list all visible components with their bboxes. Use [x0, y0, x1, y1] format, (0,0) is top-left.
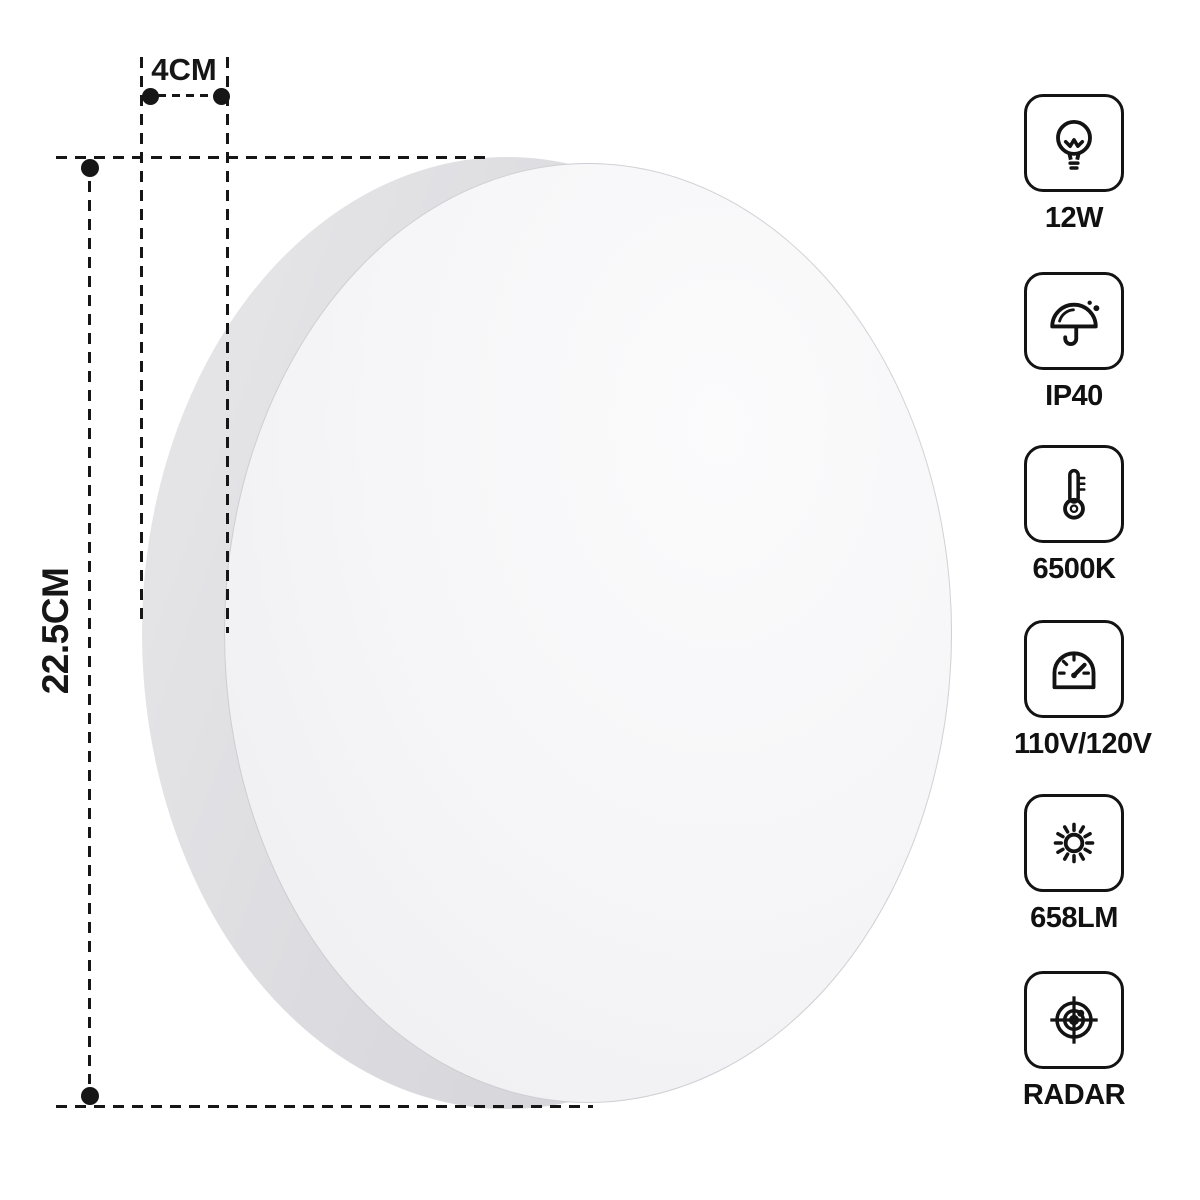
spec-label: RADAR: [1014, 1080, 1134, 1110]
spec-box: [1024, 94, 1124, 192]
spec-box: [1024, 272, 1124, 370]
thermometer-icon: [1042, 462, 1106, 526]
spec-box: [1024, 971, 1124, 1069]
spec-badge-voltage: 110V/120V: [1014, 620, 1134, 759]
depth-endpoint-dot-right: [213, 88, 230, 105]
depth-dimension-line: [158, 94, 213, 97]
diameter-endpoint-dot-top: [81, 159, 99, 177]
spec-label: 12W: [1014, 203, 1134, 233]
spec-badge-sensor: RADAR: [1014, 971, 1134, 1110]
spec-box: [1024, 445, 1124, 543]
spec-label: 6500K: [1014, 554, 1134, 584]
depth-endpoint-dot-left: [142, 88, 159, 105]
depth-extension-line-right: [226, 57, 229, 633]
spec-label: IP40: [1014, 381, 1134, 411]
spec-badge-power: 12W: [1014, 94, 1134, 233]
diameter-extension-line-bottom: [56, 1105, 593, 1108]
spec-label: 110V/120V: [1014, 729, 1134, 759]
radar-icon: [1042, 988, 1106, 1052]
depth-dimension-label: 4CM: [151, 52, 216, 88]
spec-badge-lumens: 658LM: [1014, 794, 1134, 933]
diameter-endpoint-dot-bottom: [81, 1087, 99, 1105]
umbrella-rain-icon: [1042, 289, 1106, 353]
depth-extension-line-left: [140, 57, 143, 627]
spec-label: 658LM: [1014, 903, 1134, 933]
product-spec-image: 4CM 22.5CM 12W: [0, 0, 1200, 1200]
spec-box: [1024, 620, 1124, 718]
lamp-front-face: [224, 163, 952, 1103]
diameter-dimension-line: [88, 181, 91, 1084]
spec-box: [1024, 794, 1124, 892]
diameter-extension-line-top: [56, 156, 492, 159]
sun-icon: [1042, 811, 1106, 875]
diameter-dimension-label: 22.5CM: [35, 568, 77, 695]
spec-badge-ip-rating: IP40: [1014, 272, 1134, 411]
bulb-icon: [1042, 111, 1106, 175]
spec-badge-color-temp: 6500K: [1014, 445, 1134, 584]
gauge-icon: [1042, 637, 1106, 701]
